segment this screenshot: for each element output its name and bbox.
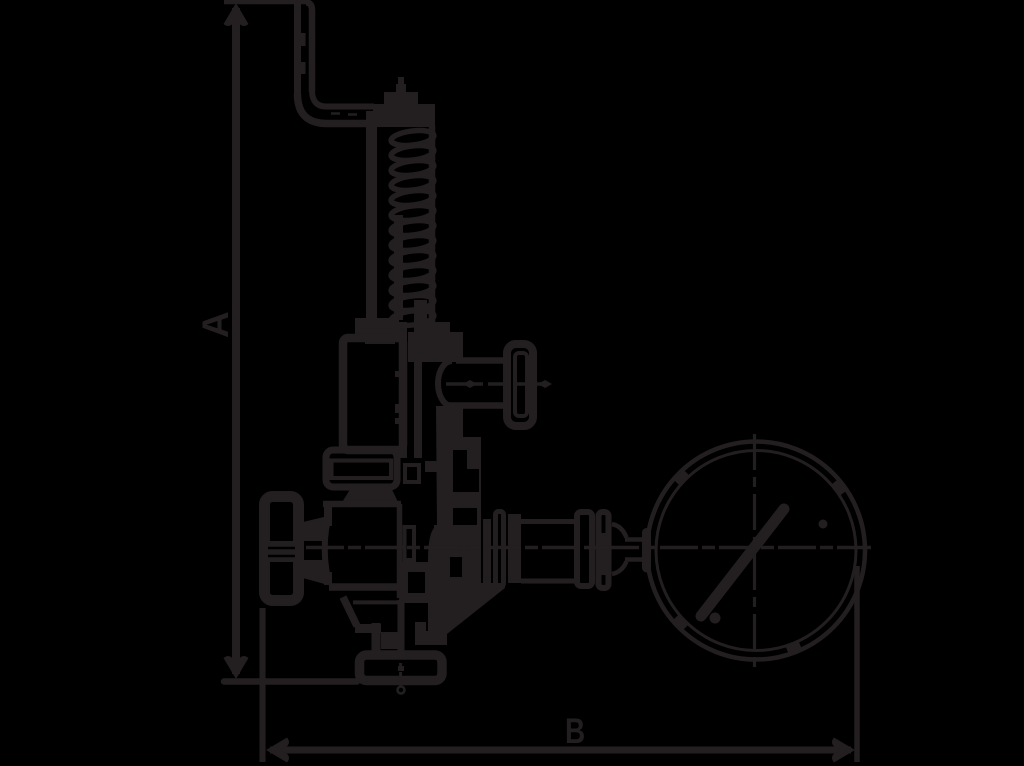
svg-text:A: A	[195, 311, 236, 338]
svg-text:B: B	[565, 711, 585, 751]
